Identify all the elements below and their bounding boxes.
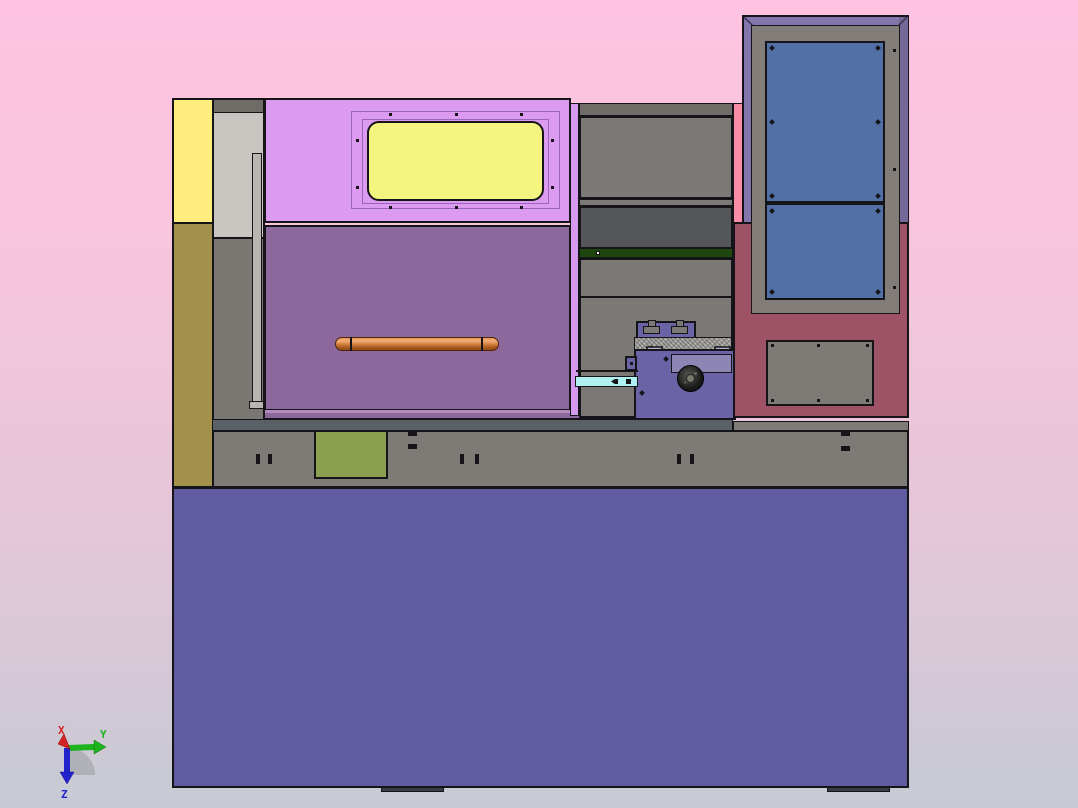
screw-icon [551,139,554,142]
guide-seam-line [576,370,638,372]
screw-icon [389,113,392,116]
door-handle[interactable] [335,337,499,351]
midcolumn-upper-panel [579,116,733,199]
left-olive-panel [172,222,214,488]
handwheel-hub [686,374,695,383]
apron-slot [841,446,850,451]
apron-vent-tick [475,454,479,464]
screw-icon [866,399,869,402]
guide-mark [626,379,631,384]
screw-icon [389,206,392,209]
screw-icon [771,344,774,347]
slide-side-dot [630,362,633,365]
way-cover-green-strip [579,248,733,258]
apron-vent-tick [256,454,260,464]
cad-viewport[interactable]: X Y Z [0,0,1078,808]
screw-icon [893,49,896,52]
apron-slot [841,431,850,436]
door-handle-end-line [350,337,352,351]
midcolumn-thin-band [579,199,733,206]
left-column-header [212,98,265,114]
door-window-upper [765,41,885,203]
door-guide-rail [252,153,262,407]
screw-icon [455,206,458,209]
screw-icon [893,286,896,289]
apron-vent-tick [677,454,681,464]
apron-slot [408,444,417,449]
midcolumn-seam-line [580,296,732,298]
screw-icon [866,344,869,347]
screw-icon [356,186,359,189]
screw-icon [771,399,774,402]
axis-x-label: X [58,724,65,737]
apron-vent-tick [460,454,464,464]
screw-icon [356,139,359,142]
screw-icon [455,113,458,116]
midcolumn-top-band [579,103,733,116]
apron-slot [408,431,417,436]
access-plate [766,340,874,406]
axis-z-label: Z [61,788,68,801]
screw-icon [893,168,896,171]
tslot-cut-base [671,326,688,334]
machine-base-cabinet [172,487,909,788]
door-guide-rail-foot [249,401,264,409]
screw-icon [520,113,523,116]
tslot-cut-base [643,326,660,334]
screw-icon [817,344,820,347]
door-window-lower [765,203,885,300]
door-handle-end-line [481,337,483,351]
apron-vent-tick [690,454,694,464]
screw-icon [551,186,554,189]
screw-icon [520,206,523,209]
screw-icon [817,399,820,402]
way-cover-dot [596,251,600,255]
left-yellow-panel [172,98,214,224]
apron-green-box [314,430,388,479]
sliding-door-panel[interactable] [264,225,571,416]
apron-vent-tick [268,454,272,464]
midcolumn-charcoal-panel [579,206,733,249]
axis-triad: X Y Z [50,724,122,802]
axis-y-label: Y [100,728,107,741]
viewing-window-yellow [367,121,544,201]
